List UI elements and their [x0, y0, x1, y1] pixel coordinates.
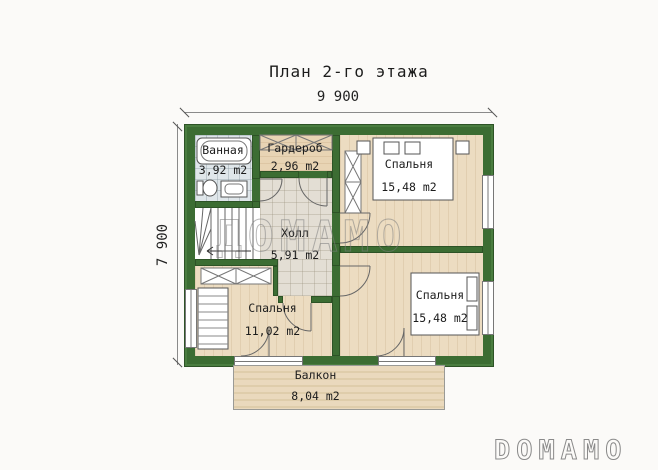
dimension-line-top — [184, 112, 492, 113]
dimension-label-width: 9 900 — [184, 89, 492, 105]
room-area-bedroom-right: 15,48 m2 — [370, 312, 510, 325]
room-label-bedroom-right: Спальня — [370, 289, 510, 302]
dimension-label-height: 7 900 — [155, 215, 171, 275]
room-label-bathroom: Ванная — [192, 144, 254, 157]
room-label-wardrobe: Гардероб — [259, 142, 331, 155]
room-label-bedroom-left: Спальня — [205, 302, 340, 315]
room-label-bedroom-top: Спальня — [339, 158, 479, 171]
room-area-bedroom-left: 11,02 m2 — [205, 325, 340, 338]
bed-icon — [198, 288, 228, 349]
sink-icon — [221, 181, 247, 197]
room-label-balcony: Балкон — [233, 369, 398, 382]
room-area-wardrobe: 2,96 m2 — [259, 160, 331, 173]
wardrobe-hatch-icon — [201, 268, 271, 284]
room-area-balcony: 8,04 m2 — [233, 390, 398, 403]
brand-logo: DOMAMO — [494, 435, 628, 466]
bed-icon — [411, 273, 479, 335]
toilet-icon — [197, 180, 217, 196]
page-title: План 2-го этажа — [195, 62, 503, 81]
room-area-bathroom: 3,92 m2 — [190, 164, 256, 177]
watermark: ДОМАМО — [216, 212, 407, 262]
room-area-bedroom-top: 15,48 m2 — [339, 181, 479, 194]
dimension-line-left — [177, 124, 178, 365]
floor-plan-page: План 2-го этажа 9 900 7 900 — [0, 0, 658, 470]
